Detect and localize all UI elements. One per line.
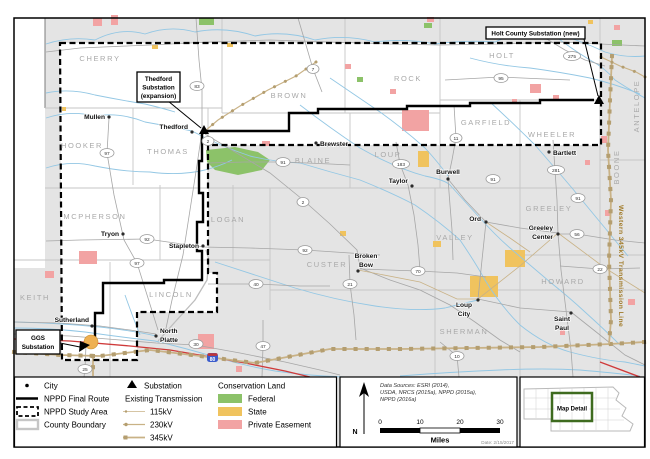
- county-label: GARFIELD: [461, 118, 511, 127]
- shield-label: 183: [397, 162, 405, 168]
- city-label: Platte: [160, 337, 178, 344]
- scale-tick: 30: [496, 419, 504, 426]
- county-label: CHERRY: [79, 54, 120, 63]
- shield-label: 91: [280, 160, 286, 166]
- shield-label: 11: [454, 136, 459, 142]
- shield-label: 56: [574, 232, 580, 238]
- shield-label: 40: [253, 282, 259, 288]
- city-label: Center: [532, 234, 553, 241]
- county-label: LOGAN: [211, 215, 245, 224]
- north-label: N: [352, 429, 357, 436]
- city-label: Sutherland: [55, 317, 89, 324]
- map-sheet: 83 7 97 2 91 2 95 275 11 183 281 91 91 9…: [0, 0, 650, 459]
- county-label: VALLEY: [436, 233, 473, 242]
- callout-line: GGS: [31, 335, 45, 342]
- data-sources-line: NPPD (2016a): [380, 397, 417, 403]
- county-label: BOONE: [612, 149, 621, 184]
- county-label: MCPHERSON: [63, 212, 126, 221]
- kv345-bead-icon: [124, 436, 128, 440]
- city-label: Burwell: [436, 169, 460, 176]
- county-label: WHEELER: [528, 130, 576, 139]
- date-label: Date: 2/15/2017: [481, 440, 514, 445]
- shield-label: 21: [347, 282, 353, 288]
- county-label: LOUP: [375, 150, 402, 159]
- city-label: Broken: [355, 253, 378, 260]
- county-label: GREELEY: [526, 204, 573, 213]
- city-label: Taylor: [389, 178, 409, 185]
- inset-panel: Map Detail: [520, 377, 645, 447]
- county-label: HOWARD: [541, 277, 585, 286]
- scale-bar: [380, 428, 500, 433]
- shield-label: 30: [193, 342, 199, 348]
- shield-label: 92: [302, 248, 308, 254]
- kv230-bead-icon: [124, 423, 127, 426]
- shield-label: 2: [207, 139, 210, 145]
- legend-city-label: City: [44, 382, 58, 391]
- shield-label: 281: [552, 168, 560, 174]
- legend-345kv-label: 345kV: [150, 434, 173, 443]
- county-label: HOLT: [489, 51, 515, 60]
- shield-label: 97: [134, 261, 140, 267]
- data-sources-line: Data Sources: ESRI (2014),: [380, 383, 449, 389]
- city-label: Brewster: [320, 141, 349, 148]
- county-label: THOMAS: [147, 147, 189, 156]
- interstate-label: 80: [210, 357, 216, 363]
- callout-line: Holt County Substation (new): [491, 31, 579, 38]
- legend-conservation-header: Conservation Land: [218, 382, 285, 391]
- shield-label: 275: [568, 54, 576, 60]
- shield-label: 22: [597, 267, 603, 273]
- shield-label: 7: [312, 67, 315, 73]
- nppd-route-map: 83 7 97 2 91 2 95 275 11 183 281 91 91 9…: [0, 0, 650, 459]
- map-detail-label: Map Detail: [557, 407, 587, 413]
- scale-tick: 0: [378, 419, 382, 426]
- shield-label: 91: [490, 177, 496, 183]
- county-label: SHERMAN: [440, 327, 489, 336]
- county-boundary-icon: [17, 420, 38, 429]
- shield-label: 91: [575, 196, 581, 202]
- legend-federal-label: Federal: [248, 395, 275, 404]
- western-345kv-label: Western 345kV Transmission Line: [617, 205, 624, 327]
- shield-label: 70: [415, 269, 421, 275]
- county-label: LINCOLN: [149, 290, 193, 299]
- county-label: ANTELOPE: [632, 80, 641, 133]
- shield-label: 92: [144, 237, 150, 243]
- legend-county-boundary-label: County Boundary: [44, 421, 106, 430]
- city-label: Thedford: [159, 124, 188, 131]
- callout-line: (expansion): [141, 93, 176, 100]
- shield-label: 10: [454, 354, 460, 360]
- legend-panel: City NPPD Final Route NPPD Study Area Co…: [15, 377, 337, 447]
- scale-panel: N Data Sources: ESRI (2014), USDA, NRCS …: [340, 377, 517, 447]
- city-label: Tryon: [101, 231, 119, 238]
- shield-label: 47: [260, 344, 266, 350]
- city-label: Greeley: [529, 225, 554, 232]
- county-label: BLAINE: [295, 156, 331, 165]
- shield-label: 2: [302, 200, 305, 206]
- city-label: Bow: [359, 262, 374, 269]
- study-area-icon: [17, 407, 38, 416]
- legend-existing-transmission-label: Existing Transmission: [125, 395, 202, 404]
- callout-line: Thedford: [145, 76, 172, 83]
- county-label: HOOKER: [61, 141, 103, 150]
- city-label: Stapleton: [169, 243, 199, 250]
- interstate-80-shield: 80: [207, 353, 218, 363]
- city-label: Paul: [555, 325, 569, 332]
- shield-label: 25: [82, 367, 88, 373]
- callout-line: Substation: [22, 344, 55, 351]
- city-label: Mullen: [84, 114, 105, 121]
- city-label: Bartlett: [553, 150, 577, 157]
- county-label: CUSTER: [307, 260, 347, 269]
- legend-substation-label: Substation: [144, 382, 182, 391]
- scale-tick: 10: [416, 419, 424, 426]
- scale-unit-label: Miles: [431, 436, 450, 445]
- city-label: Saint: [554, 316, 571, 323]
- city-label: Loup: [456, 302, 472, 309]
- shield-label: 83: [194, 84, 200, 90]
- shield-label: 97: [104, 151, 110, 157]
- county-label: KEITH: [20, 293, 50, 302]
- city-icon: [25, 384, 29, 388]
- city-label: Ord: [469, 216, 481, 223]
- city-label: City: [458, 311, 471, 318]
- county-label: ROCK: [394, 74, 422, 83]
- private-easement-swatch: [218, 420, 242, 429]
- kv115-bead-icon: [125, 410, 127, 412]
- legend-state-label: State: [248, 408, 267, 417]
- county-label: BROWN: [271, 91, 308, 100]
- city-label: North: [160, 328, 178, 335]
- legend-private-label: Private Easement: [248, 421, 312, 430]
- state-swatch: [218, 407, 242, 416]
- scale-tick: 20: [456, 419, 464, 426]
- legend-final-route-label: NPPD Final Route: [44, 395, 110, 404]
- legend-study-area-label: NPPD Study Area: [44, 408, 108, 417]
- legend-115kv-label: 115kV: [150, 408, 173, 417]
- legend-230kv-label: 230kV: [150, 421, 173, 430]
- shield-label: 95: [498, 76, 504, 82]
- callout-line: Substation: [142, 85, 175, 92]
- federal-swatch: [218, 394, 242, 403]
- data-sources-line: USDA, NRCS (2015a), NPPD (2015a),: [380, 390, 476, 396]
